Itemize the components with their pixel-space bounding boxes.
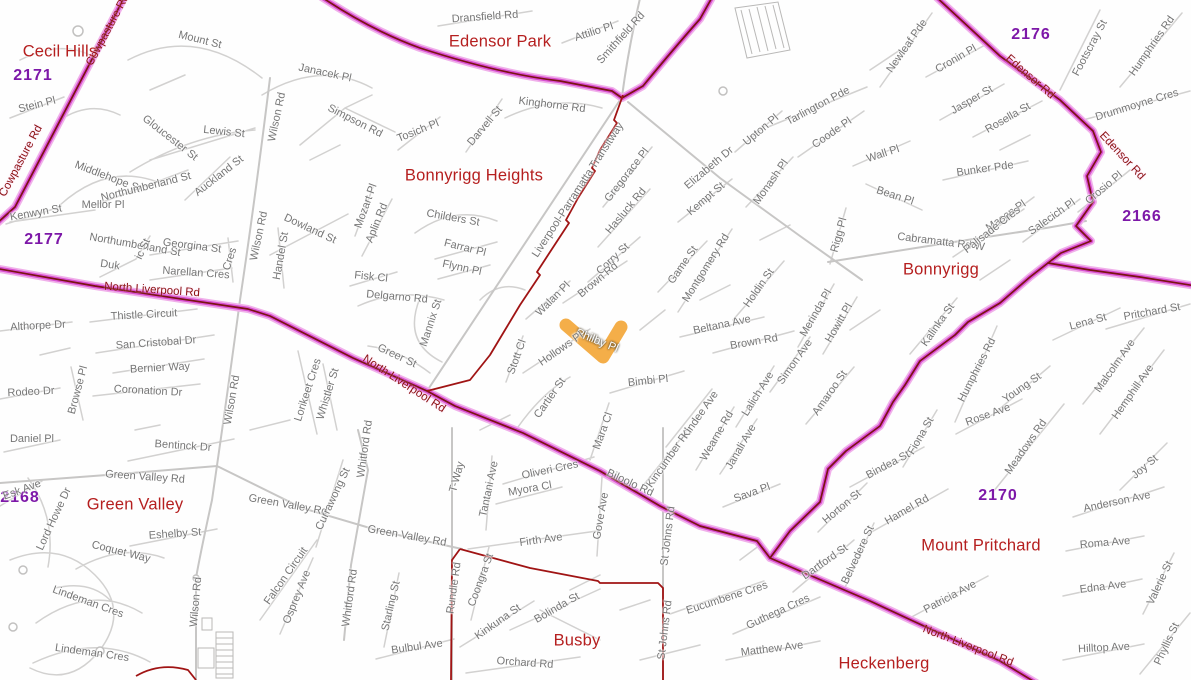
- street-label: Humphries Rd: [1127, 14, 1177, 78]
- street-label: Fiona St: [906, 415, 937, 456]
- street-label: Newleaf Pde: [884, 17, 930, 75]
- street-label: Rodeo Dr: [7, 385, 55, 399]
- street-label: Narellan Cres: [162, 265, 230, 282]
- street-label: ic St: [133, 237, 153, 261]
- street-label: Georgina St: [162, 236, 222, 255]
- street-label: Crosio Pl: [1083, 169, 1125, 207]
- street-label: Green Valley Rd: [105, 468, 186, 486]
- postcode-label: 2168: [0, 489, 40, 507]
- street-label: Merinda Pl: [798, 287, 835, 339]
- street-label: Orchard Rd: [496, 655, 554, 671]
- street-label: Myora Cl: [507, 479, 552, 498]
- suburb-label: Green Valley: [87, 496, 184, 515]
- street-label: Biloolo Rd: [605, 467, 656, 499]
- street-label: Darvell St: [465, 104, 505, 148]
- street-label: Smithfield Rd: [595, 10, 648, 67]
- street-label: Lalich Ave: [740, 370, 777, 419]
- street-label: Bentinck Dr: [154, 438, 212, 454]
- street-label: Drummoyne Cres: [1094, 87, 1180, 124]
- street-label: Brown Rd: [576, 260, 621, 300]
- street-label: Phyllis St: [1152, 621, 1182, 667]
- postcode-label: 2177: [24, 231, 64, 249]
- street-label: Whitford Rd: [340, 568, 360, 627]
- street-label: Attilio Pl: [573, 20, 615, 44]
- street-label: Edna Ave: [1079, 578, 1127, 596]
- street-label: Mount St: [177, 29, 223, 51]
- street-label: Belvedere St: [839, 524, 876, 586]
- street-label: Brown Rd: [729, 332, 779, 352]
- street-label: Lord Howe Dr: [34, 486, 74, 553]
- street-label: Stein Pl: [17, 95, 57, 116]
- street-label: Gove Ave: [591, 492, 611, 541]
- street-label: Simon Ave: [775, 337, 815, 387]
- street-label: Mara Cl: [591, 411, 615, 451]
- street-label: Lena St: [1068, 311, 1108, 332]
- street-label: Esk Ave: [1, 478, 42, 503]
- street-label: Jasper St: [949, 83, 995, 117]
- street-label: Althorpe Dr: [10, 319, 66, 334]
- street-label: Mellor Pl: [82, 199, 125, 211]
- street-label: Lindeman Cres: [54, 642, 130, 664]
- street-label: Montgomery Rd: [680, 232, 732, 305]
- street-label: Cres: [221, 246, 240, 272]
- street-label: Kempt St: [685, 180, 727, 218]
- street-label: Joy St: [1129, 453, 1160, 482]
- street-label: Falcon Circuit: [262, 545, 310, 607]
- street-label: Walan Pl: [533, 279, 572, 318]
- postcode-label: 2176: [1011, 26, 1051, 44]
- street-label: Tarlington Pde: [784, 84, 852, 128]
- street-label: Coquet Way: [90, 539, 151, 565]
- street-label: Cartier St: [532, 376, 568, 421]
- street-label: Daniel Pl: [10, 433, 54, 445]
- street-label: Green Valley Rd: [367, 523, 448, 549]
- street-label: Cabramatta Rd W: [897, 231, 986, 254]
- street-label: Whitford Rd: [355, 419, 375, 478]
- street-label: Roma Ave: [1079, 535, 1130, 551]
- suburb-label: Edensor Park: [449, 33, 551, 52]
- street-label: Delgarno Rd: [366, 288, 429, 305]
- road-name-label: Edensor Rd: [1097, 130, 1147, 183]
- street-label: Wilson Rd: [248, 210, 270, 262]
- street-label: Osprey Ave: [281, 568, 313, 625]
- street-label: Whistler St: [314, 367, 341, 421]
- map-labels-layer: Cecil HillsEdensor ParkBonnyrigg Heights…: [0, 0, 1191, 680]
- street-label: Lindeman Cres: [51, 584, 125, 621]
- suburb-label: Bonnyrigg Heights: [405, 167, 543, 186]
- road-name-label: North Liverpool Rd: [104, 281, 200, 300]
- street-label: Coronation Dr: [113, 383, 182, 399]
- street-label: Wall Pl: [865, 143, 901, 165]
- street-label: San Cristobal Dr: [115, 334, 196, 352]
- street-label: Starling St: [379, 580, 402, 632]
- street-label: Anderson Ave: [1082, 489, 1151, 515]
- street-label: Young St: [1000, 370, 1043, 405]
- street-label: Liverpool-Parramatta Transitway: [530, 120, 626, 259]
- street-label: Monash Pl: [751, 157, 791, 206]
- street-label: Meadows Rd: [1003, 417, 1050, 476]
- street-label: Green Valley Rd: [248, 492, 329, 518]
- street-label: Howitt Pl: [823, 301, 855, 345]
- street-label: Dransfield Rd: [451, 9, 518, 26]
- street-label: Coode Pl: [810, 115, 854, 151]
- street-label: Handel St: [271, 231, 291, 281]
- postcode-label: 2170: [978, 487, 1018, 505]
- street-label: Simpson Rd: [326, 102, 385, 140]
- street-label: Flynn Pl: [441, 258, 482, 278]
- street-label: Greer St: [376, 342, 419, 370]
- street-label: Guthega Cres: [744, 592, 811, 632]
- street-label: Gloucester St: [140, 113, 200, 163]
- street-label: Bindea St: [864, 449, 912, 482]
- street-label: Elizabeth Dr: [682, 144, 736, 192]
- street-label: Hamel Rd: [883, 493, 931, 528]
- street-label: Bimbi Pl: [627, 373, 668, 389]
- street-label: Stott Cl: [505, 338, 529, 376]
- street-label: Hollows Pl: [537, 329, 586, 368]
- street-label: Bulbul Ave: [391, 637, 444, 656]
- suburb-label: Bonnyrigg: [903, 261, 979, 280]
- suburb-label: Cecil Hills: [23, 43, 98, 62]
- street-label: Amaroo St: [810, 368, 850, 417]
- street-label: Game St: [666, 244, 701, 286]
- street-label: Salecich Pl: [1026, 196, 1077, 237]
- street-label: T-Way: [447, 460, 467, 493]
- street-label: Wearne Rd: [698, 409, 736, 463]
- street-label: Bean Pl: [875, 184, 915, 207]
- street-label: Northumberland St: [88, 231, 181, 259]
- street-label: Bolinda St: [532, 590, 581, 625]
- street-label: Kincumber Rd: [644, 426, 694, 490]
- map-canvas[interactable]: Cecil HillsEdensor ParkBonnyrigg Heights…: [0, 0, 1191, 680]
- street-label: Currawong St: [313, 466, 352, 532]
- suburb-label: Mount Pritchard: [921, 537, 1040, 556]
- street-label: Kalinka St: [919, 301, 957, 348]
- street-label: Bernier Way: [130, 360, 191, 375]
- street-label: Eucumbene Cres: [685, 579, 770, 617]
- street-label: Hasluck Rd: [603, 186, 648, 237]
- street-label: Dartford St: [800, 542, 850, 582]
- street-label: Lorikeet Cres: [292, 357, 324, 423]
- street-label: Kinkuna St: [473, 602, 523, 642]
- street-label: Tantani Ave: [477, 460, 501, 518]
- street-label: Beltana Ave: [692, 313, 752, 337]
- street-label: Kinghorne Rd: [518, 95, 586, 115]
- postcode-label: 2166: [1122, 208, 1162, 226]
- street-label: Duk: [99, 258, 120, 273]
- street-label: Rose Ave: [964, 401, 1012, 428]
- street-label: Northumberland St: [100, 170, 192, 204]
- street-label: Janacek Pl: [297, 62, 352, 85]
- road-name-label: Cowpasture Rd: [84, 0, 132, 68]
- street-label: Bunker Pde: [956, 159, 1015, 179]
- street-label: Wilson Rd: [266, 91, 288, 143]
- street-label: Wilson Rd: [222, 374, 243, 425]
- highlighted-street-label[interactable]: Philby Pl: [574, 327, 620, 355]
- street-label: Eshelby St: [148, 526, 201, 542]
- street-label: Lewis St: [203, 124, 246, 140]
- street-label: Cronin Pl: [933, 42, 978, 75]
- street-label: Holdin St: [741, 266, 776, 309]
- street-label: Dowland St: [282, 212, 338, 247]
- street-label: Oliveri Cres: [521, 458, 580, 482]
- street-label: Sava Pl: [732, 481, 772, 505]
- street-label: Coongra St: [466, 552, 496, 608]
- street-label: Rigg Pl: [829, 216, 850, 253]
- street-label: Upton Pl: [741, 112, 781, 148]
- road-name-label: North Liverpool Rd: [921, 623, 1015, 669]
- suburb-label: Busby: [554, 632, 601, 651]
- street-label: Fisk Cl: [354, 269, 389, 284]
- postcode-label: 2171: [13, 67, 53, 85]
- street-label: St Johns Rd: [655, 600, 674, 661]
- street-label: Corry St: [594, 241, 632, 277]
- street-label: Valerie St: [1145, 559, 1176, 607]
- street-label: Tosich Pl: [395, 117, 440, 145]
- street-label: Farrar Pl: [443, 237, 487, 259]
- street-label: Middlehope St: [73, 159, 143, 195]
- street-label: Janali Ave: [723, 422, 758, 471]
- road-name-label: Cowpasture Rd: [0, 123, 45, 199]
- street-label: Rosella St: [983, 100, 1032, 135]
- street-label: Hemphill Ave: [1110, 362, 1157, 421]
- street-label: Childers St: [425, 207, 480, 228]
- street-label: Kenwyn St: [9, 203, 63, 224]
- street-label: Gregorace Pl: [602, 146, 651, 204]
- street-label: Firth Ave: [519, 531, 563, 549]
- street-label: Kindee Ave: [679, 389, 721, 441]
- road-name-label: North Liverpool Rd: [361, 353, 448, 415]
- street-label: Footscray St: [1070, 18, 1110, 78]
- street-label: Patricia Ave: [922, 578, 979, 616]
- street-label: Thistle Circuit: [110, 307, 177, 322]
- street-label: Aplin Rd: [364, 201, 391, 244]
- street-label: Hilltop Ave: [1078, 641, 1130, 656]
- street-label: Matthew Ave: [740, 639, 804, 659]
- street-label: Mannix St: [418, 298, 445, 348]
- street-label: Wilson Rd: [188, 577, 204, 628]
- road-name-label: Edensor Rd: [1003, 53, 1057, 102]
- street-label: Auckland St: [192, 153, 246, 199]
- street-label: St Johns Rd: [658, 506, 677, 567]
- street-label: Horton St: [820, 487, 863, 526]
- street-label: Browse Pl: [66, 365, 90, 416]
- street-label: Pritchard St: [1123, 301, 1182, 323]
- street-label: Palisade Cres: [961, 204, 1022, 256]
- suburb-label: Heckenberg: [839, 655, 930, 674]
- street-label: Malcolm Ave: [1092, 337, 1137, 395]
- street-label: Mason Pl: [984, 198, 1028, 234]
- street-label: Humphries Rd: [956, 336, 999, 404]
- street-label: Rundle Rd: [444, 561, 463, 614]
- street-label: Mozart Pl: [352, 182, 379, 230]
